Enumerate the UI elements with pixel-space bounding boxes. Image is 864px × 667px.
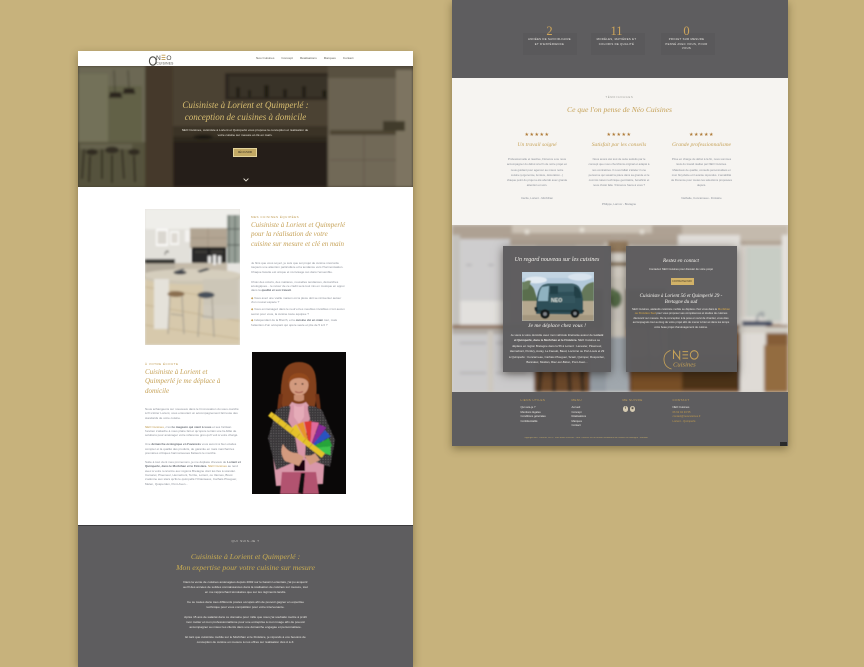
svg-text:Cuisines: Cuisines — [673, 361, 696, 368]
svg-text:CUISINES: CUISINES — [156, 61, 174, 65]
svg-text:NEO: NEO — [551, 298, 562, 304]
